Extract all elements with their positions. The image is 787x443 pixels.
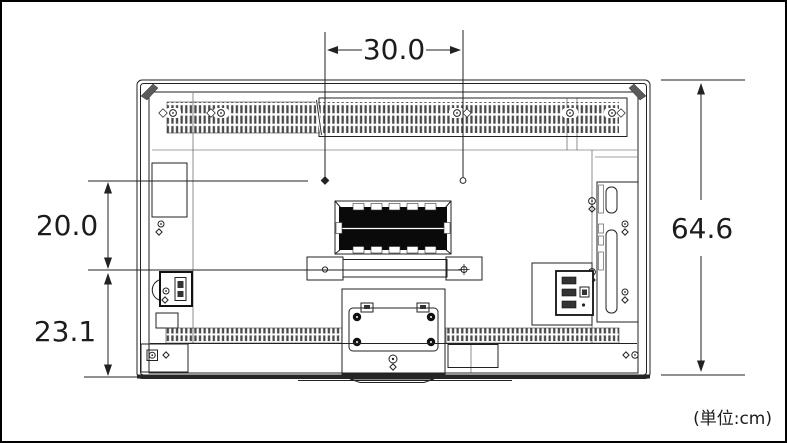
bottom-vent-grille-left	[166, 328, 342, 343]
hdmi-port-icon	[562, 301, 576, 308]
unit-note-label: (単位:cm)	[693, 409, 772, 429]
dim-total-height-label: 64.6	[671, 212, 733, 245]
dim-lower-height-label: 23.1	[34, 315, 96, 348]
port-contact	[178, 281, 184, 288]
tv-bottom-edge	[137, 375, 650, 379]
top-vent-grille	[167, 98, 627, 137]
indicator-dot	[582, 303, 585, 306]
dim-upper-height-label: 20.0	[36, 209, 98, 242]
port-contact	[178, 291, 184, 297]
hdmi-port-icon	[562, 289, 576, 296]
dim-top-width-label: 30.0	[363, 33, 425, 66]
hdmi-port-icon	[562, 277, 576, 284]
diagram-canvas: 30.0 20.0 23.1 64.6 (単位:cm)	[0, 0, 787, 443]
tv-rear-dimension-figure: 30.0 20.0 23.1 64.6 (単位:cm)	[0, 0, 787, 443]
screw-icon	[562, 108, 578, 118]
center-terminal-recess	[335, 201, 451, 254]
bottom-vent-grille-right	[446, 328, 619, 343]
